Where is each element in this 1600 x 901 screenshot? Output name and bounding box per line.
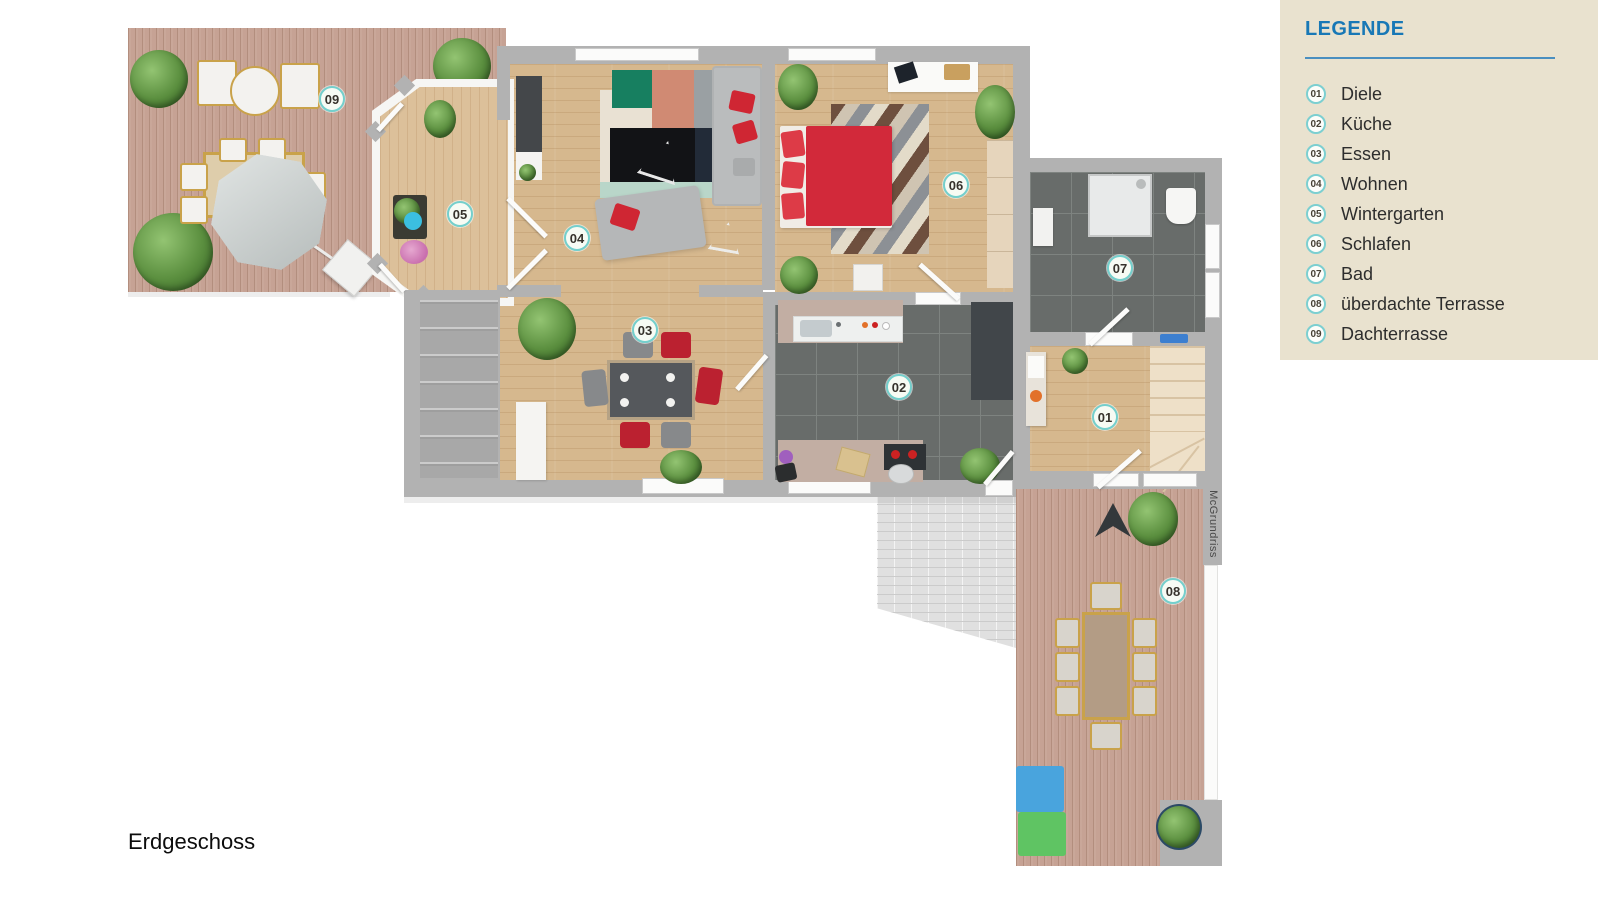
bed-pillow [780,130,805,159]
window [575,48,699,61]
window [1205,272,1220,318]
kitchen-sink [800,320,832,337]
room-badge-schlafen: 06 [943,172,969,198]
wall-living-dining-right [699,285,763,297]
deck-chair [219,138,247,162]
terrace-table [1082,612,1130,720]
house-shadow [404,497,1016,503]
bath-mat-blue [1160,334,1188,343]
wall-dining-kitchen [763,292,775,482]
plant-icon [960,448,1000,484]
plant-icon [1158,806,1200,848]
plant-icon [778,64,818,110]
floor-plan-page: 01 02 03 04 05 06 07 08 09 LEGENDE 01Die… [0,0,1600,901]
room-badge-essen: 03 [632,317,658,343]
bedroom-stool [853,264,883,291]
deck-chair [180,163,208,191]
window [788,480,871,494]
plate-icon [666,373,675,382]
legend-item: 09Dachterrasse [1306,323,1505,345]
legend-number-badge: 03 [1306,144,1326,164]
fridge-cabinet [971,302,1013,400]
stove-knob-icon [882,322,890,330]
legend-item: 01Diele [1306,83,1505,105]
stove-knob-icon [862,322,868,328]
legend-number-badge: 07 [1306,264,1326,284]
room-badge-dachterrasse: 09 [319,86,345,112]
legend-list: 01Diele 02Küche 03Essen 04Wohnen 05Winte… [1306,83,1505,353]
patio-pavers [877,495,1016,648]
flower-pink-icon [400,240,428,264]
wall-bath-top [1030,158,1222,172]
legend-label: Schlafen [1341,234,1411,255]
exterior-stairs [420,300,498,478]
plant-icon [424,100,456,138]
plant-icon [1128,492,1178,546]
legend-label: Küche [1341,114,1392,135]
legend-number-badge: 08 [1306,294,1326,314]
terrace-chair [1055,686,1080,716]
window [788,48,876,61]
plate-icon [620,373,629,382]
room-badge-wohnen: 04 [564,225,590,251]
kitchen-bin [888,464,914,484]
plant-icon [660,450,702,484]
plant-icon [518,298,576,360]
watermark: McGrundriss [1207,490,1219,558]
terrace-chair [1132,686,1157,716]
bed-pillow [781,192,805,220]
plant-icon [780,256,818,294]
legend-item: 08überdachte Terrasse [1306,293,1505,315]
legend-item: 03Essen [1306,143,1505,165]
terrace-chair [1090,722,1122,750]
legend-number-badge: 04 [1306,174,1326,194]
tv-sideboard [516,76,542,152]
legend-label: Diele [1341,84,1382,105]
window [1143,473,1197,487]
exterior-wall-right [1205,158,1222,487]
plant-icon [1062,348,1088,374]
terrace-chair [1055,618,1080,648]
terrace-railing [1204,565,1218,800]
legend-title: LEGENDE [1305,18,1404,41]
legend-item: 06Schlafen [1306,233,1505,255]
decor-orange-icon [1030,390,1042,402]
legend-label: Bad [1341,264,1373,285]
burner-icon [891,450,900,459]
desk-tray [944,64,970,80]
wall-living-left [497,64,510,120]
dining-cabinet [516,402,546,480]
wardrobe [987,140,1013,288]
plant-icon [130,50,188,108]
legend-item: 07Bad [1306,263,1505,285]
legend-number-badge: 06 [1306,234,1326,254]
window [1205,224,1220,269]
room-badge-diele: 01 [1092,404,1118,430]
legend-label: Dachterrasse [1341,324,1448,345]
room-badge-kueche: 02 [886,374,912,400]
shower-head-icon [1136,179,1146,189]
hall-sideboard-top [1028,356,1044,378]
deck-stool [280,63,320,109]
sofa-pillow-gray [733,158,755,176]
terrace-chair [1055,652,1080,682]
terrace-chair [1132,652,1157,682]
plant-icon [975,85,1015,139]
flower-blue-icon [404,212,422,230]
dining-table [607,360,695,420]
storage-box-green [1018,812,1066,856]
bed-duvet-red [806,126,892,226]
legend-item: 04Wohnen [1306,173,1505,195]
exterior-wall-bottom [497,480,1016,497]
legend-item: 05Wintergarten [1306,203,1505,225]
plant-icon [519,164,536,181]
interior-stairs-steps [1150,346,1206,432]
floor-title: Erdgeschoss [128,829,255,855]
toilet [1166,188,1196,224]
terrace-chair [1090,582,1122,610]
hallway-floor [1030,346,1150,482]
stove-knob-icon [872,322,878,328]
dining-chair-gray [661,422,691,448]
legend-number-badge: 02 [1306,114,1326,134]
legend-number-badge: 09 [1306,324,1326,344]
room-badge-wintergarten: 05 [447,201,473,227]
dining-chair-gray [581,369,609,407]
bed-pillow [781,161,806,189]
wall-bedroom-bath [1013,46,1030,346]
plate-icon [620,398,629,407]
room-badge-terrasse: 08 [1160,578,1186,604]
room-badge-bad: 07 [1107,255,1133,281]
dining-chair-red [695,367,724,406]
deck-round-table [230,66,280,116]
faucet-icon [836,322,841,327]
wall-living-bedroom [762,64,775,290]
plate-icon [666,398,675,407]
bath-shelf [1033,208,1053,246]
legend-item: 02Küche [1306,113,1505,135]
legend-label: Wintergarten [1341,204,1444,225]
legend-label: überdachte Terrasse [1341,294,1505,315]
deck-chair [180,196,208,224]
burner-icon [908,450,917,459]
legend-panel: LEGENDE 01Diele 02Küche 03Essen 04Wohnen… [1280,0,1598,360]
plant-icon [133,213,213,291]
dining-chair-red [661,332,691,358]
legend-number-badge: 01 [1306,84,1326,104]
storage-box-blue [1016,766,1064,812]
terrace-chair [1132,618,1157,648]
legend-label: Wohnen [1341,174,1408,195]
legend-number-badge: 05 [1306,204,1326,224]
dining-chair-red [620,422,650,448]
legend-divider [1305,57,1555,59]
legend-label: Essen [1341,144,1391,165]
